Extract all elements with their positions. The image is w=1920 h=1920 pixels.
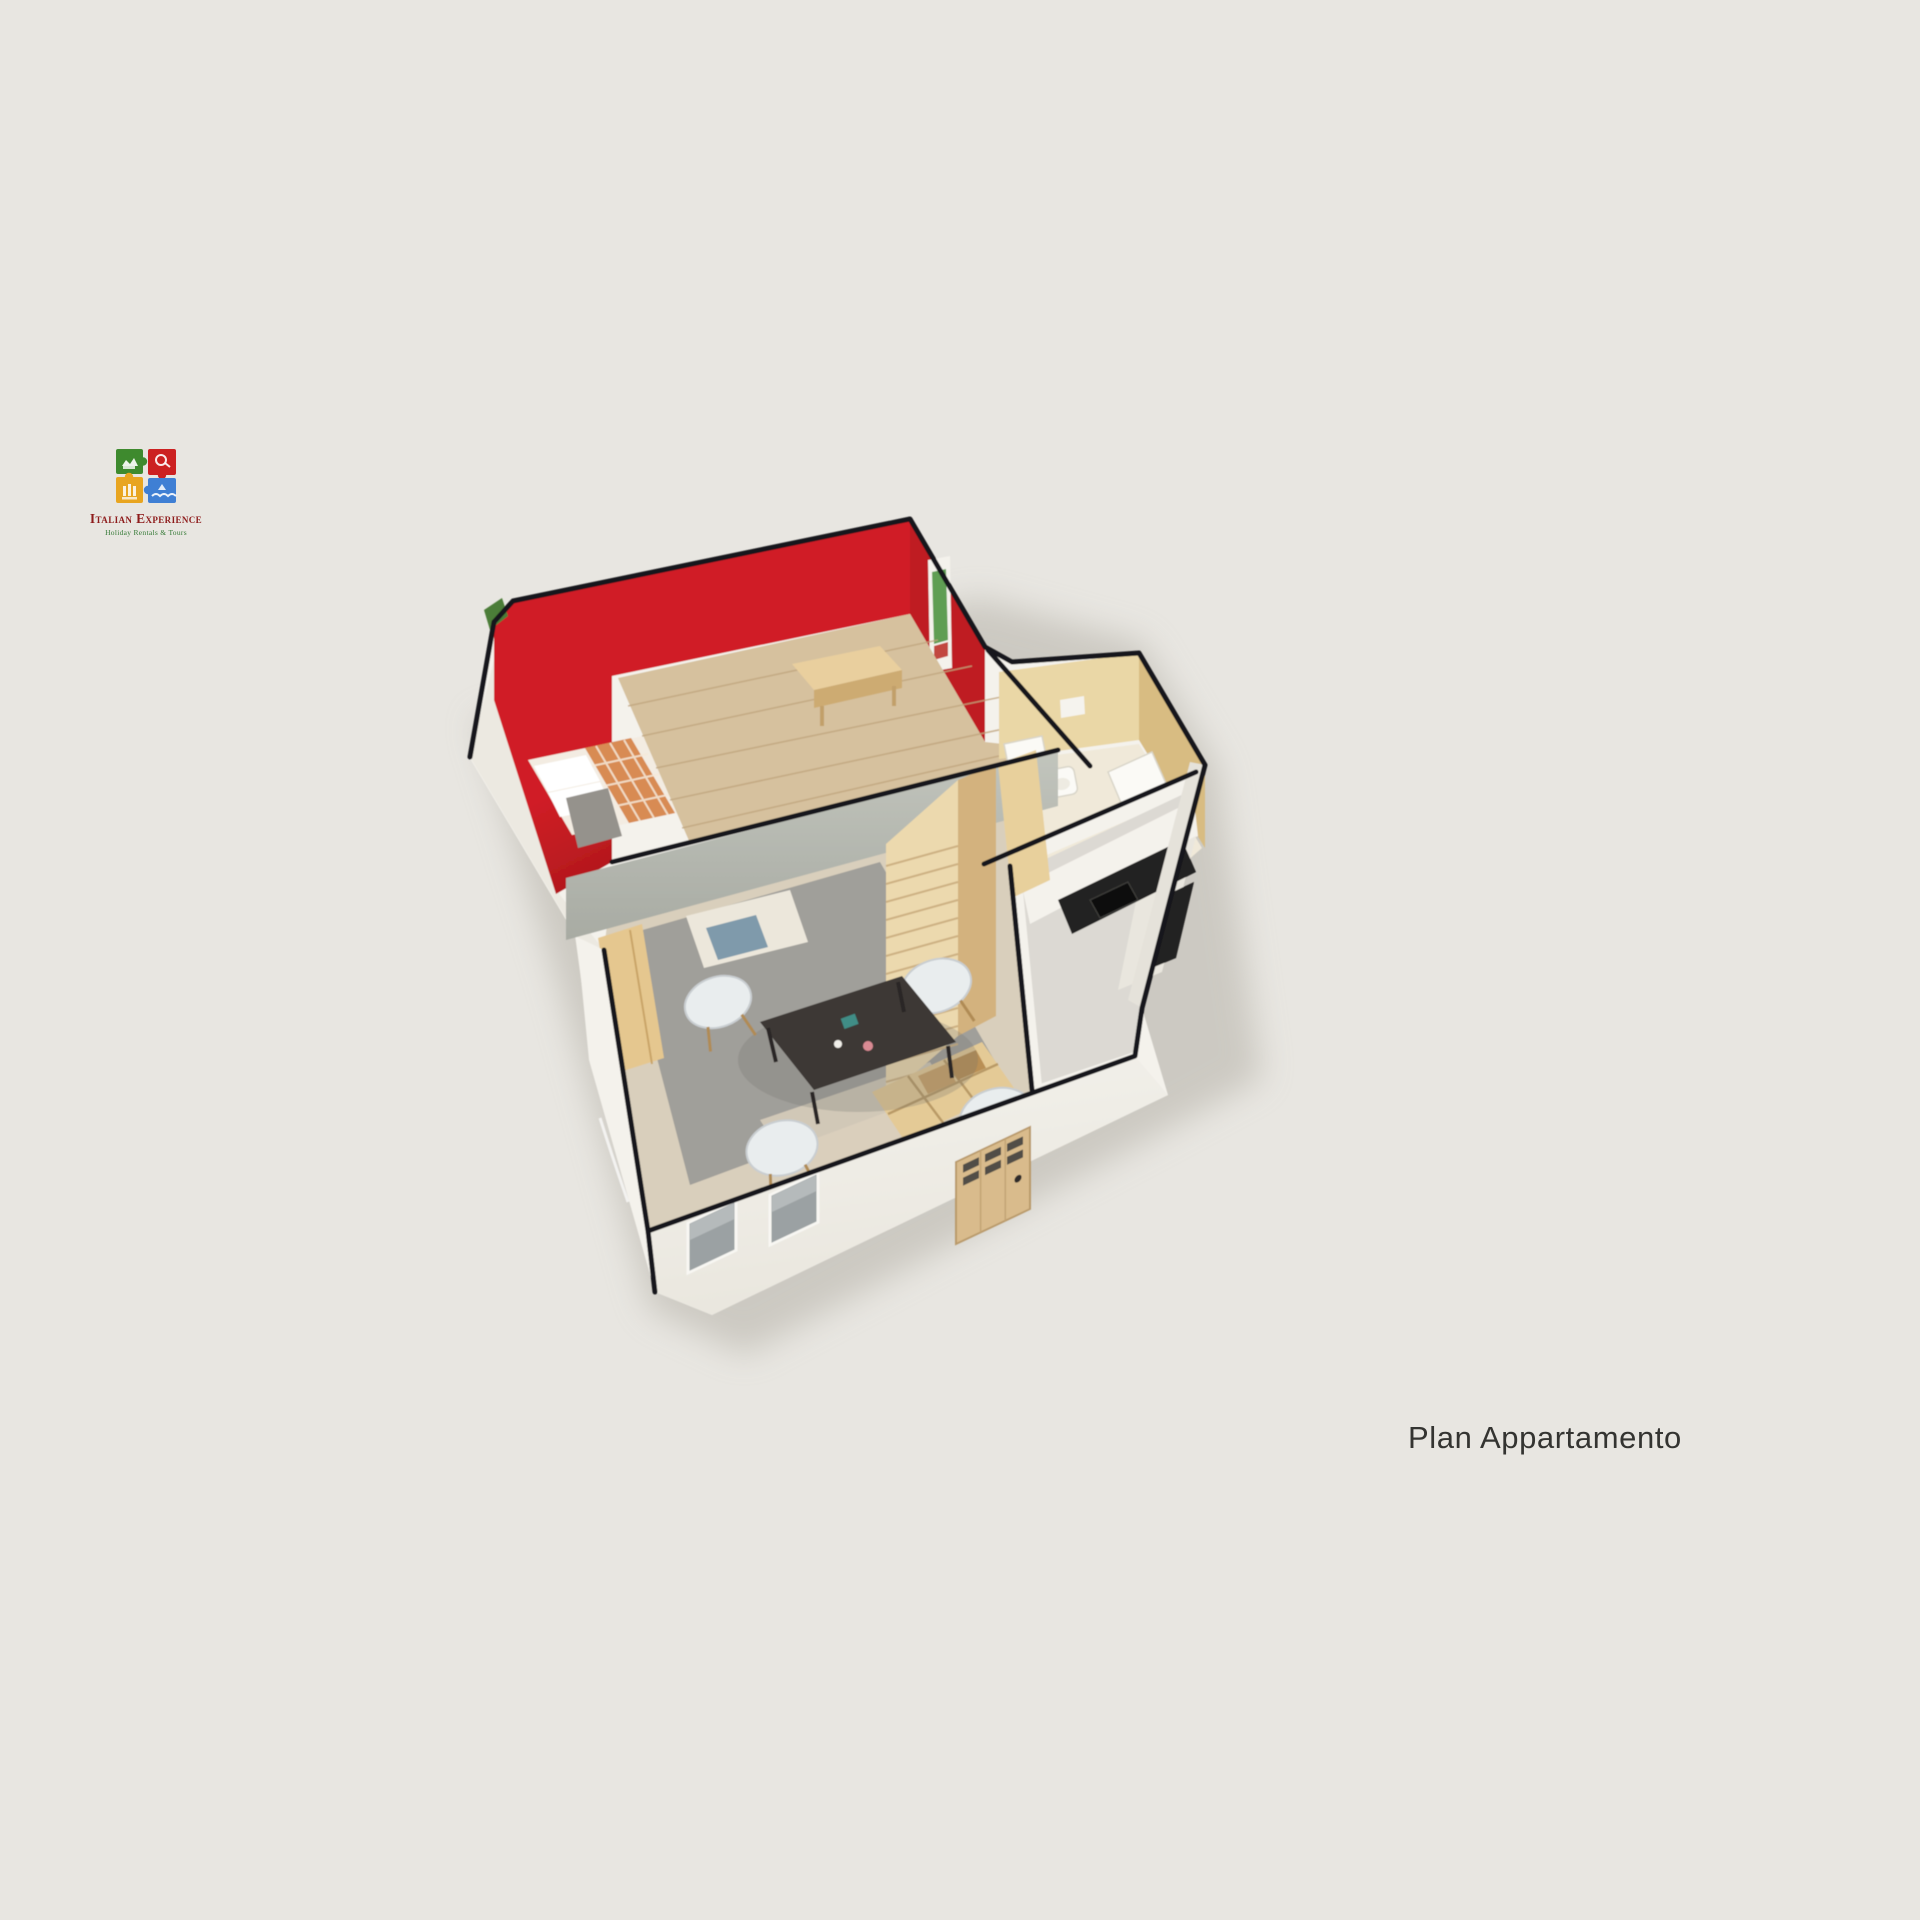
table-item (863, 1041, 873, 1051)
puzzle-piece-yellow-icon (116, 473, 143, 503)
puzzle-piece-blue-icon (144, 478, 176, 503)
puzzle-piece-green-icon (116, 449, 147, 474)
presentation-slide: Italian Experience Holiday Rentals & Tou… (0, 0, 1920, 1920)
floor-plan-render (0, 0, 1920, 1920)
table-item (834, 1040, 842, 1048)
logo: Italian Experience Holiday Rentals & Tou… (84, 446, 208, 537)
brand-tagline: Holiday Rentals & Tours (84, 528, 208, 537)
puzzle-piece-red-icon (148, 449, 176, 479)
italian-experience-logo-icon (114, 446, 178, 506)
brand-name: Italian Experience (84, 511, 208, 527)
plan-caption: Plan Appartamento (1408, 1420, 1682, 1456)
